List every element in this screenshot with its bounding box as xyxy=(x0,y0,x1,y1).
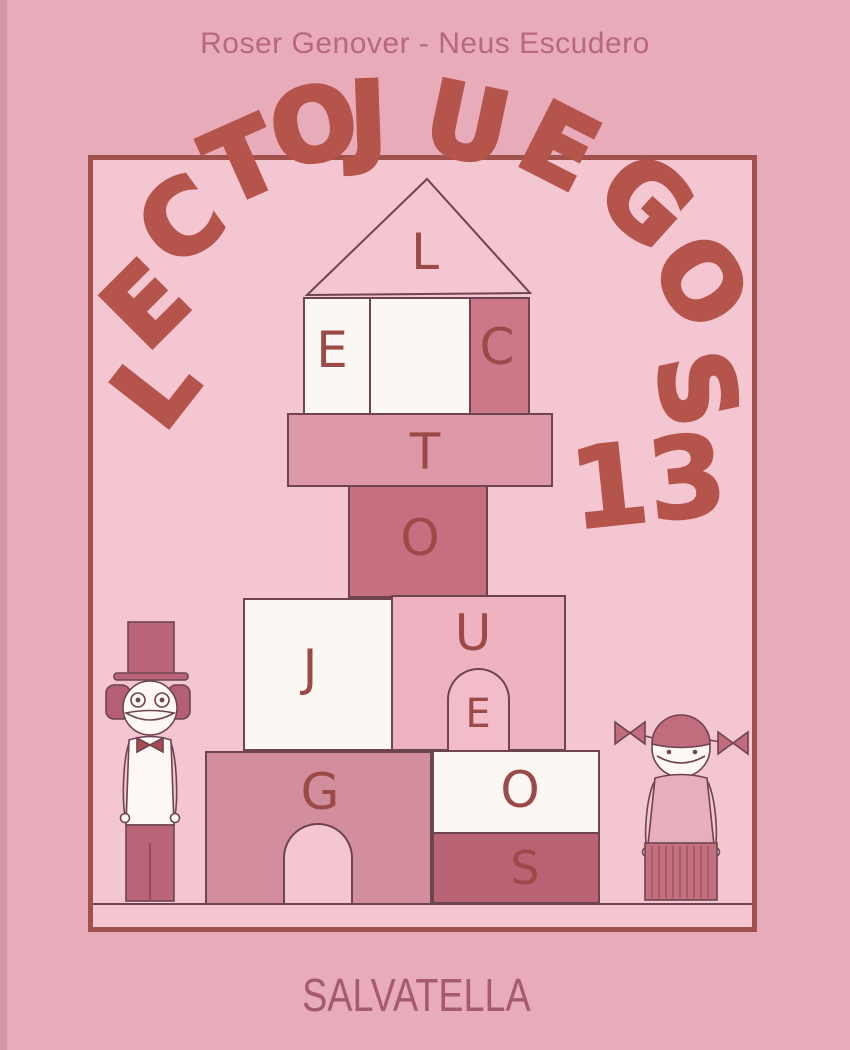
block-letter-e: E xyxy=(316,325,348,375)
girl-bow-left xyxy=(615,722,645,744)
block-letter-e-door: E xyxy=(465,694,490,734)
block-letter-u: U xyxy=(455,608,492,658)
block-letter-c: C xyxy=(480,322,515,372)
boy-head xyxy=(123,681,177,735)
book-cover: Roser Genover - Neus Escudero L E C T O … xyxy=(0,0,850,1050)
author-line: Roser Genover - Neus Escudero xyxy=(0,27,850,61)
girl-bow-right xyxy=(718,732,748,754)
girl-with-pigtails-icon xyxy=(605,700,765,905)
publisher-logo-text: SALVATELLA xyxy=(75,968,758,1022)
block-letter-o: O xyxy=(400,513,439,563)
girl-hair xyxy=(652,715,710,748)
block-letter-s: S xyxy=(510,845,539,891)
girl-skirt xyxy=(645,843,717,900)
block-letter-j: J xyxy=(303,643,318,693)
boy-shirt xyxy=(126,737,174,826)
girl-dress xyxy=(648,775,714,846)
boy-with-top-hat-icon xyxy=(98,615,202,907)
block-wall-middle xyxy=(369,297,471,415)
block-letter-t: T xyxy=(410,427,441,477)
title-letter-6: J xyxy=(348,68,389,169)
block-letter-roof: L xyxy=(411,227,439,277)
boy-hat-top xyxy=(128,622,174,676)
block-big-left xyxy=(243,598,393,751)
block-doorway-opening xyxy=(283,823,353,905)
block-letter-g: G xyxy=(301,767,340,817)
block-letter-o-bottom: O xyxy=(500,765,539,815)
page-edge-shadow xyxy=(0,0,7,1050)
volume-number: 13 xyxy=(565,419,732,547)
boy-hat-brim xyxy=(114,673,188,680)
